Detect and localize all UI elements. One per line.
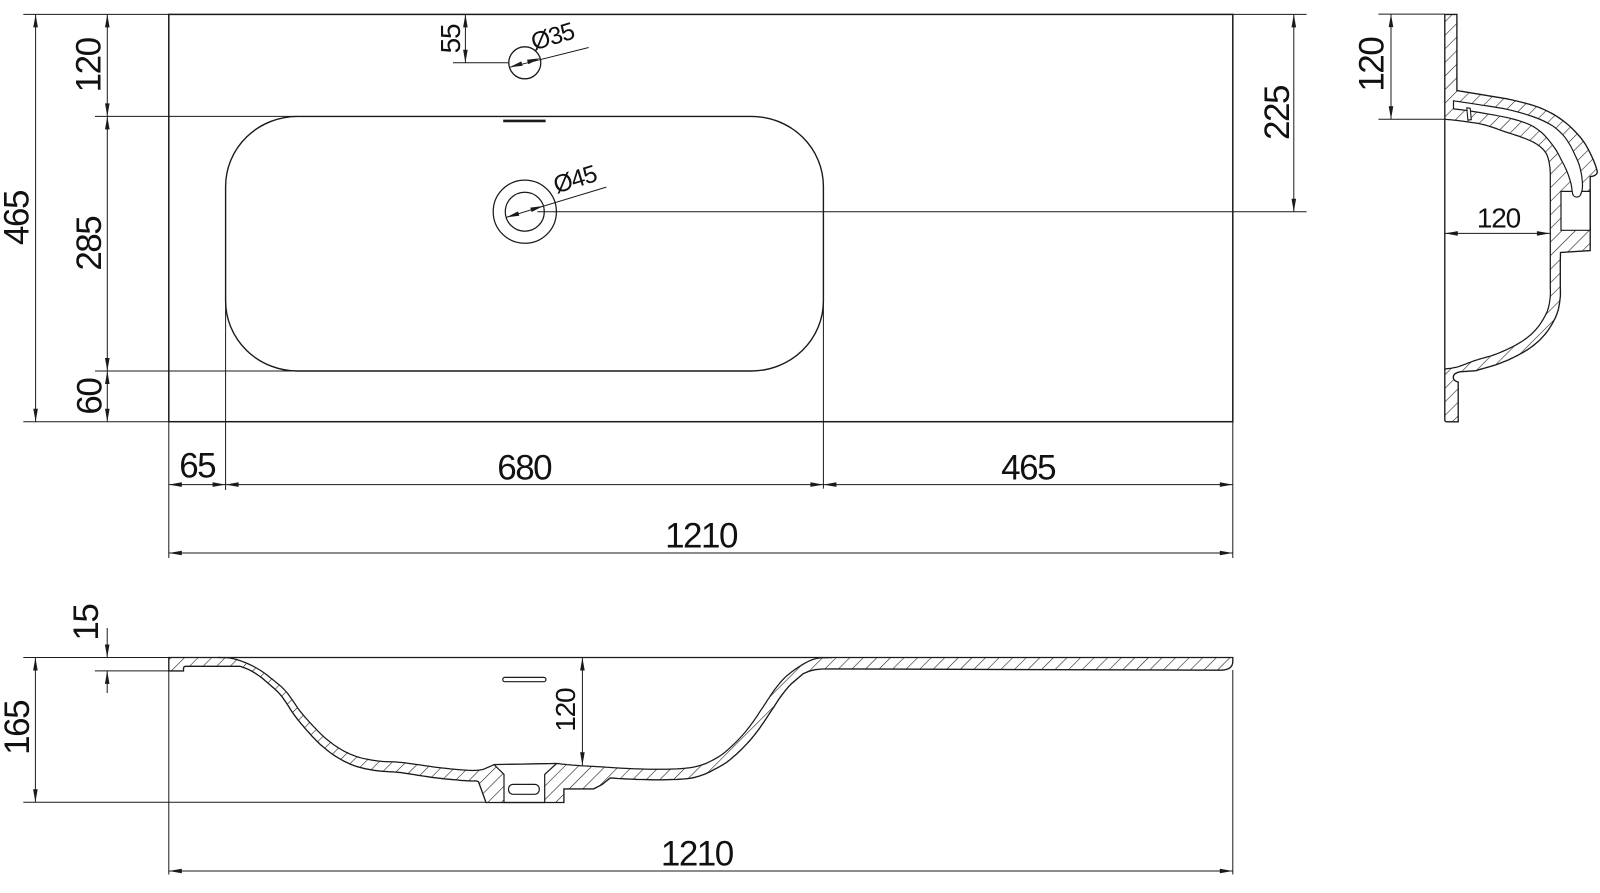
svg-text:165: 165 (0, 701, 37, 755)
svg-text:65: 65 (179, 447, 215, 486)
svg-text:55: 55 (435, 24, 466, 53)
svg-text:120: 120 (1477, 202, 1521, 233)
svg-text:465: 465 (0, 191, 37, 245)
svg-text:60: 60 (70, 378, 109, 415)
svg-text:1210: 1210 (661, 835, 734, 874)
svg-text:285: 285 (70, 217, 109, 271)
svg-text:680: 680 (497, 449, 552, 488)
svg-text:120: 120 (550, 688, 581, 732)
svg-text:1210: 1210 (665, 517, 738, 556)
svg-text:120: 120 (1352, 37, 1391, 92)
svg-text:15: 15 (67, 605, 106, 641)
svg-text:225: 225 (1258, 86, 1297, 140)
svg-text:465: 465 (1001, 449, 1055, 488)
svg-text:120: 120 (69, 37, 108, 92)
